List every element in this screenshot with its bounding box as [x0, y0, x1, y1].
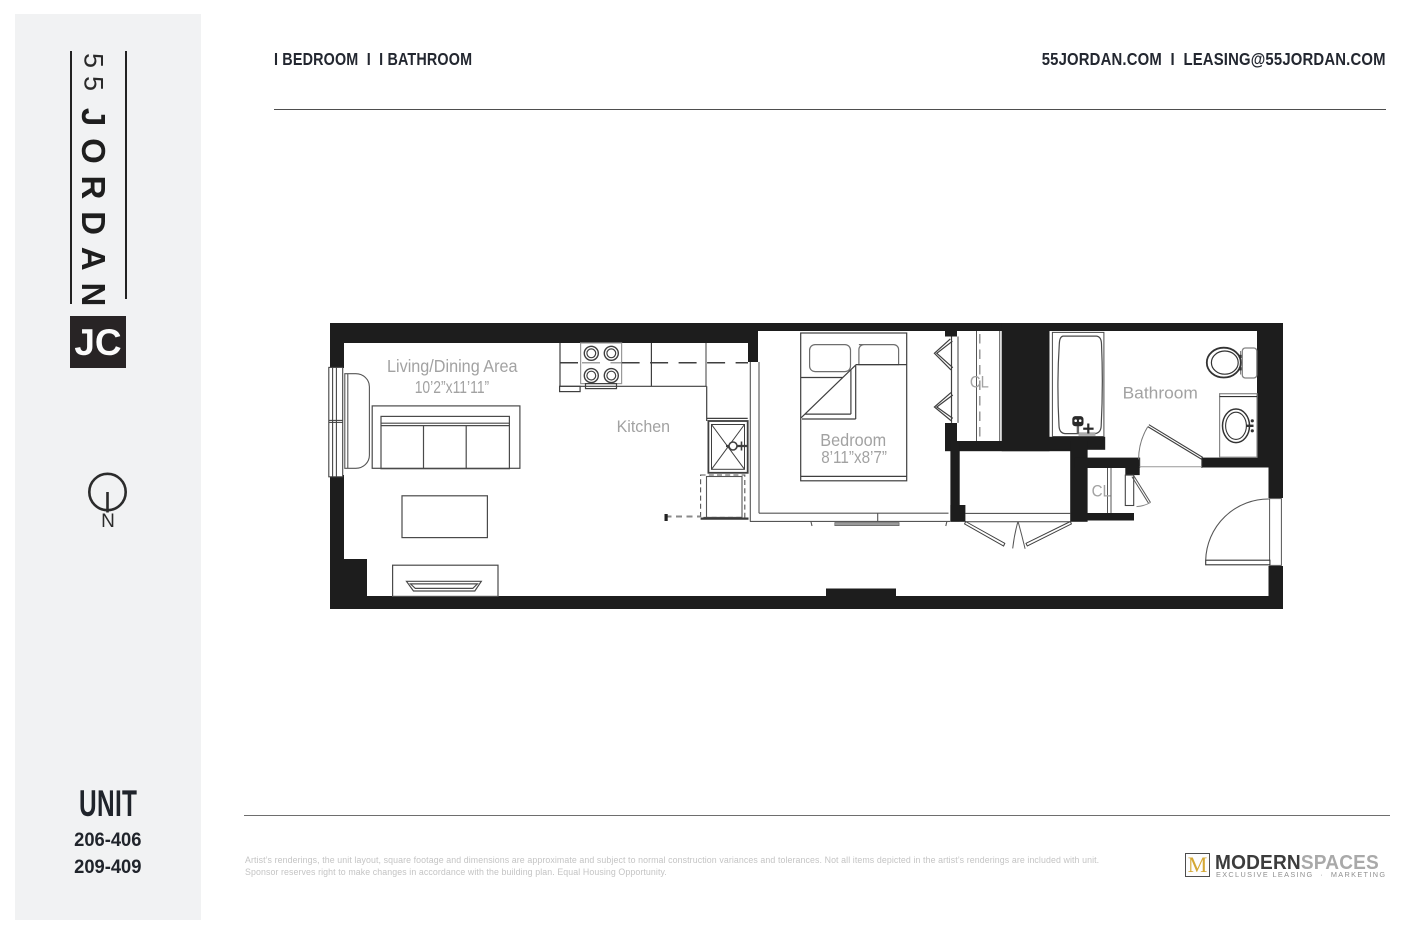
- svg-text:CL: CL: [1092, 482, 1111, 500]
- svg-text:Living/Dining Area: Living/Dining Area: [387, 356, 518, 376]
- svg-text:8’11”x8’7”: 8’11”x8’7”: [821, 447, 887, 467]
- svg-text:Bathroom: Bathroom: [1123, 384, 1198, 403]
- svg-text:Kitchen: Kitchen: [617, 418, 671, 436]
- svg-text:CL: CL: [970, 373, 989, 391]
- svg-text:10’2”x11’11”: 10’2”x11’11”: [415, 377, 490, 397]
